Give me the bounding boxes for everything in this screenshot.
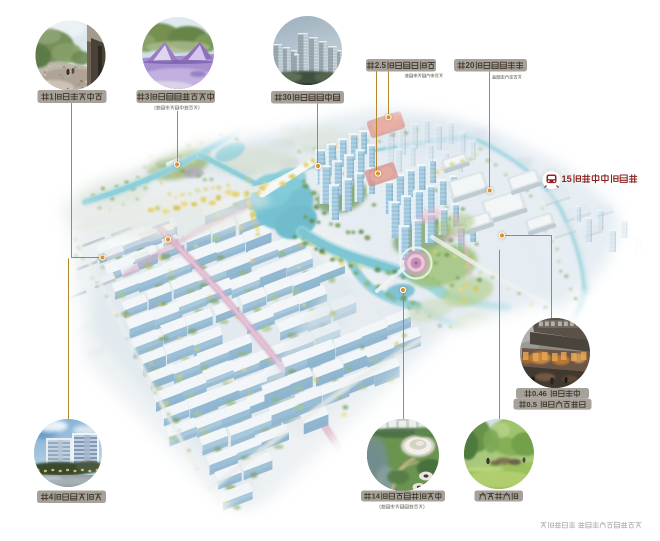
svg-text:0.46: 0.46 bbox=[532, 389, 547, 398]
svg-text:0.5: 0.5 bbox=[526, 400, 537, 409]
svg-text:15: 15 bbox=[562, 174, 572, 184]
svg-text:2.5: 2.5 bbox=[375, 61, 387, 70]
svg-text:(: ( bbox=[379, 504, 381, 509]
svg-text:14: 14 bbox=[372, 492, 381, 501]
svg-text:(: ( bbox=[154, 105, 156, 110]
svg-text:3: 3 bbox=[145, 92, 150, 101]
svg-text:): ) bbox=[198, 105, 200, 110]
svg-text:20: 20 bbox=[466, 61, 475, 70]
svg-text:30: 30 bbox=[283, 93, 292, 102]
svg-text:): ) bbox=[423, 504, 425, 509]
svg-text:1: 1 bbox=[49, 92, 54, 101]
svg-text:4: 4 bbox=[49, 493, 54, 502]
